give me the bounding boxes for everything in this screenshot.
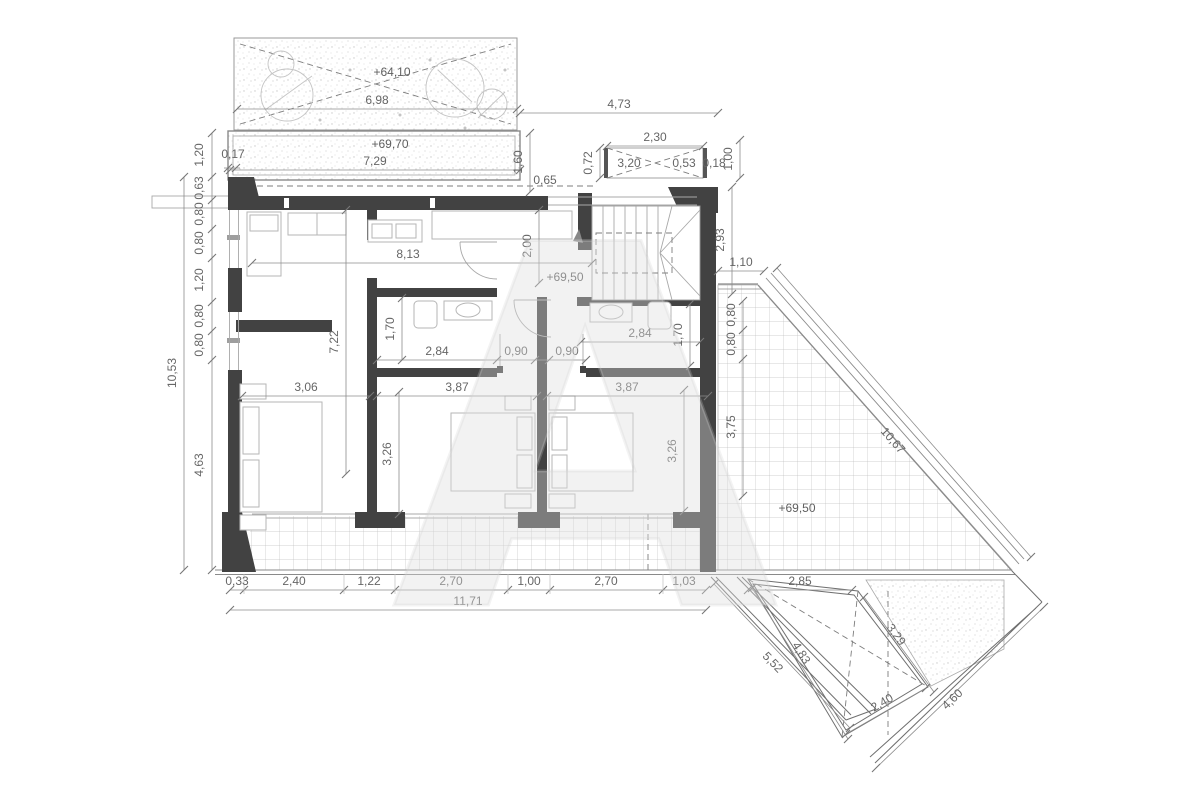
watermark-letter: A: [392, 141, 783, 723]
dim-6-98: 6,98: [365, 93, 389, 107]
dim-4-60: 4,60: [939, 686, 966, 713]
dim-0-80-b: 0,80: [192, 231, 206, 255]
level-label-terrace: +69,50: [778, 501, 815, 515]
dim-7-29: 7,29: [363, 154, 387, 168]
dim-3-06: 3,06: [294, 380, 318, 394]
floor-plan-page: +64,10 6,98 4,73 +69,70 7,29 0,17 2,30 3…: [0, 0, 1200, 800]
dim-0-80-d: 0,80: [192, 333, 206, 357]
left-canopy-line: [152, 196, 230, 208]
wall-left-mid: [228, 268, 242, 312]
dim-0-33: 0,33: [225, 574, 249, 588]
dim-0-80-c: 0,80: [192, 304, 206, 328]
wall-bedroom1-stub: [236, 320, 332, 332]
floor-plan-canvas: +64,10 6,98 4,73 +69,70 7,29 0,17 2,30 3…: [0, 0, 1200, 800]
dim-1-20-b: 1,20: [192, 268, 206, 292]
dim-0-80-a: 0,80: [192, 202, 206, 226]
dim-1-20-a: 1,20: [192, 143, 206, 167]
dim-1-22: 1,22: [357, 574, 381, 588]
nightstand: [240, 515, 266, 530]
dim-4-63: 4,63: [192, 453, 206, 477]
upper-garden-area: [234, 38, 517, 130]
dim-2-40-b: 2,40: [868, 690, 896, 714]
dim-4-73: 4,73: [607, 97, 631, 111]
level-label-garden: +64,10: [373, 65, 410, 79]
dim-2-85: 2,85: [788, 574, 812, 588]
dim-7-22: 7,22: [327, 330, 341, 354]
dim-0-63: 0,63: [192, 176, 206, 200]
nightstand: [240, 384, 266, 399]
dim-0-17: 0,17: [221, 147, 245, 161]
dim-10-53: 10,53: [165, 358, 179, 388]
dim-2-40-a: 2,40: [282, 574, 306, 588]
